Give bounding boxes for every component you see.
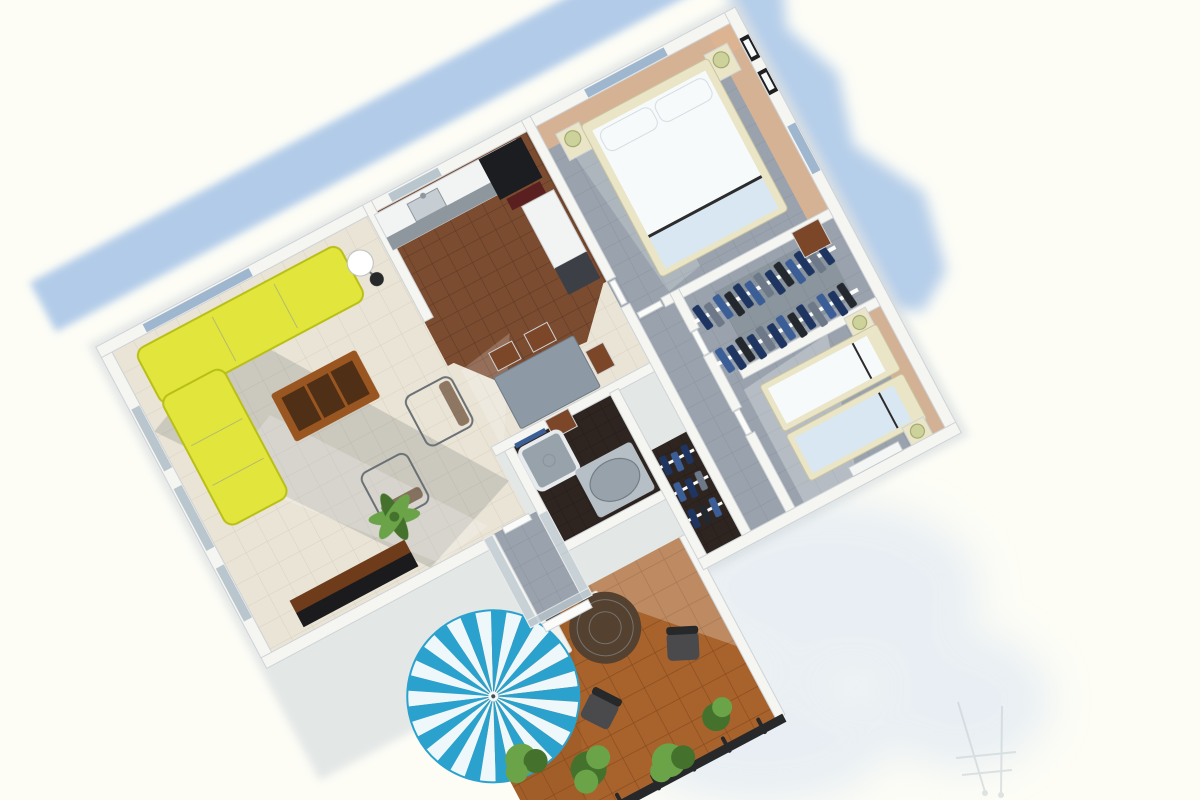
floorplan-svg — [0, 0, 1200, 800]
terrace-chair — [666, 626, 700, 662]
floorplan-render — [0, 0, 1200, 800]
